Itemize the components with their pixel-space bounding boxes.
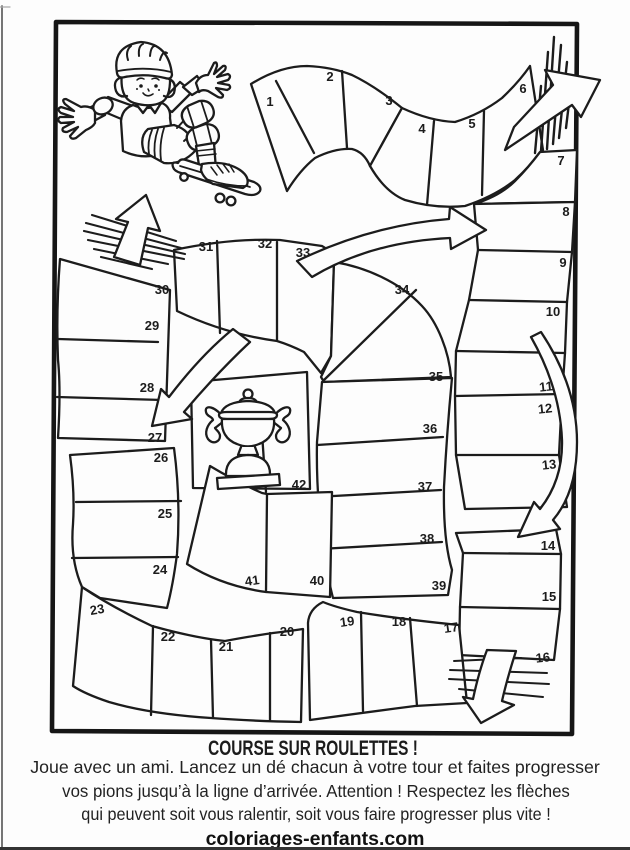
svg-text:10: 10 xyxy=(546,304,560,319)
svg-text:13: 13 xyxy=(541,456,557,472)
svg-text:4: 4 xyxy=(418,121,426,136)
svg-text:vos pions jusqu’à la ligne d’a: vos pions jusqu’à la ligne d’arrivée. At… xyxy=(62,781,570,801)
svg-text:37: 37 xyxy=(418,479,432,494)
svg-text:25: 25 xyxy=(158,506,172,521)
svg-text:1: 1 xyxy=(266,94,273,109)
svg-text:5: 5 xyxy=(468,116,475,131)
svg-text:33: 33 xyxy=(296,245,310,260)
svg-text:COURSE SUR ROULETTES !: COURSE SUR ROULETTES ! xyxy=(208,736,418,760)
svg-text:7: 7 xyxy=(557,153,564,168)
svg-text:Joue avec un ami. Lancez un dé: Joue avec un ami. Lancez un dé chacun à … xyxy=(30,757,600,777)
svg-text:20: 20 xyxy=(280,624,294,639)
svg-text:qui peuvent soit vous ralentir: qui peuvent soit vous ralentir, soit vou… xyxy=(81,804,550,824)
svg-text:8: 8 xyxy=(562,204,569,219)
svg-text:16: 16 xyxy=(535,649,551,665)
svg-text:39: 39 xyxy=(432,578,446,593)
svg-text:31: 31 xyxy=(199,239,213,254)
svg-text:42: 42 xyxy=(292,477,306,492)
svg-text:12: 12 xyxy=(537,400,553,416)
svg-text:18: 18 xyxy=(392,614,406,629)
svg-text:19: 19 xyxy=(339,613,355,630)
svg-text:6: 6 xyxy=(519,81,526,96)
svg-text:15: 15 xyxy=(542,589,556,604)
svg-text:30: 30 xyxy=(155,282,169,297)
svg-text:21: 21 xyxy=(219,639,233,654)
svg-text:27: 27 xyxy=(148,430,162,445)
svg-text:29: 29 xyxy=(145,318,159,333)
svg-text:34: 34 xyxy=(395,282,410,297)
svg-text:14: 14 xyxy=(541,538,556,553)
svg-text:2: 2 xyxy=(326,69,333,84)
svg-text:28: 28 xyxy=(140,380,154,395)
svg-text:35: 35 xyxy=(429,369,443,384)
svg-text:9: 9 xyxy=(559,255,566,270)
svg-text:23: 23 xyxy=(89,601,106,618)
svg-text:38: 38 xyxy=(420,531,434,546)
svg-text:24: 24 xyxy=(153,562,168,577)
svg-text:22: 22 xyxy=(161,629,175,644)
svg-text:36: 36 xyxy=(423,421,437,436)
svg-text:11: 11 xyxy=(538,378,553,394)
svg-text:3: 3 xyxy=(385,93,392,108)
svg-text:26: 26 xyxy=(154,450,168,465)
svg-text:coloriages-enfants.com: coloriages-enfants.com xyxy=(206,828,425,850)
svg-text:40: 40 xyxy=(310,573,324,588)
svg-text:41: 41 xyxy=(244,572,260,589)
svg-text:17: 17 xyxy=(443,619,459,636)
svg-text:32: 32 xyxy=(258,236,272,251)
